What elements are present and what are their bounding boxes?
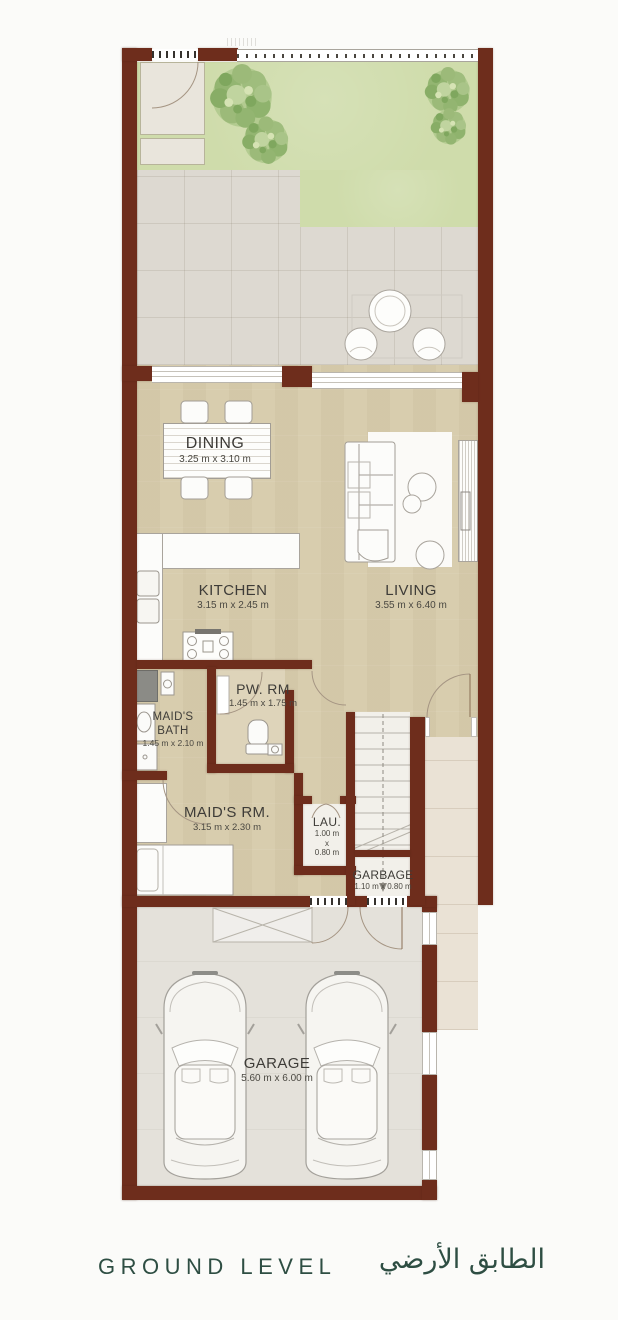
- room-label-garage: GARAGE 5.60 m x 6.00 m: [241, 1055, 313, 1084]
- room-dims: 1.45 m x 1.75 m: [229, 698, 297, 709]
- wall-laundry: [294, 796, 312, 804]
- room-label-maids-bath: MAID'S BATH 1.45 m x 2.10 m: [143, 711, 204, 748]
- door-leaf: [217, 676, 229, 714]
- garage-wall: [422, 945, 437, 1032]
- room-label-dining: DINING 3.25 m x 3.10 m: [179, 435, 251, 466]
- garage-gate-hatch: [310, 896, 347, 907]
- room-dims: 5.60 m x 6.00 m: [241, 1073, 313, 1085]
- room-label-living: LIVING 3.55 m x 6.40 m: [375, 582, 447, 611]
- stairs: [353, 714, 415, 892]
- toilet-icon: [246, 720, 270, 754]
- room-name: MAID'S RM.: [184, 804, 270, 822]
- outdoor-seating-set: [345, 290, 462, 360]
- room-name: PW. RM: [229, 681, 297, 698]
- room-name: GARAGE: [241, 1055, 313, 1073]
- garage-canopy: [213, 908, 312, 942]
- tree-icon: [425, 67, 470, 113]
- sink-icon: [137, 571, 159, 623]
- garage-window: [422, 912, 437, 945]
- room-name: KITCHEN: [197, 582, 269, 600]
- room-dims: 3.25 m x 3.10 m: [179, 454, 251, 466]
- garage-wall: [422, 1180, 437, 1200]
- wall-pier: [282, 366, 312, 387]
- garage-gate-hatch: [367, 896, 407, 907]
- tree-icon: [431, 108, 466, 145]
- room-dims: x: [313, 839, 341, 848]
- wall-right: [478, 48, 493, 905]
- level-title-arabic: الطابق الأرضي: [350, 1244, 545, 1275]
- door-jamb: [471, 717, 477, 737]
- entry-gate-hatch: [152, 49, 198, 60]
- wall-top: [198, 48, 238, 61]
- washbasin-icon: [268, 744, 282, 755]
- wall-divider: [207, 667, 216, 773]
- room-dims: 1.10 m x 0.80 m: [353, 882, 414, 891]
- garage-window: [422, 1150, 437, 1180]
- wall-maids: [122, 896, 310, 907]
- wall-bottom: [122, 1186, 437, 1200]
- wall-garbage: [355, 850, 410, 857]
- tv-icon: [461, 492, 470, 530]
- wall-pier: [462, 372, 478, 402]
- garage-wall: [422, 1075, 437, 1150]
- room-dims: 0.80 m: [313, 848, 341, 857]
- room-label-maids-room: MAID'S RM. 3.15 m x 2.30 m: [184, 804, 270, 833]
- bed-icon: [133, 845, 233, 895]
- wall-bath: [122, 771, 167, 780]
- door-jamb: [425, 717, 430, 737]
- room-name: MAID'S: [143, 711, 204, 725]
- room-name: BATH: [143, 725, 204, 739]
- sliding-door: [152, 366, 282, 383]
- wall-powder: [207, 764, 294, 773]
- room-label-powder: PW. RM 1.45 m x 1.75 m: [229, 681, 297, 709]
- level-title-english: GROUND LEVEL: [98, 1254, 336, 1280]
- wall-laundry: [294, 773, 303, 875]
- wall-kitchen: [137, 660, 312, 669]
- wall-left: [122, 48, 137, 1200]
- wall-top: [122, 48, 152, 61]
- room-label-kitchen: KITCHEN 3.15 m x 2.45 m: [197, 582, 269, 611]
- room-name: GARBAGE: [353, 868, 414, 882]
- room-label-garbage: GARBAGE 1.10 m x 0.80 m: [353, 868, 414, 892]
- room-name: LIVING: [375, 582, 447, 600]
- wall-house-front: [122, 366, 152, 381]
- cooktop-icon: [183, 629, 233, 661]
- room-dims: 3.55 m x 6.40 m: [375, 600, 447, 612]
- room-dims: 3.15 m x 2.30 m: [184, 822, 270, 833]
- garage-side-door: [422, 1032, 437, 1075]
- room-name: DINING: [179, 435, 251, 454]
- room-dims: 1.45 m x 2.10 m: [143, 738, 204, 748]
- floor-plan-canvas: DINING 3.25 m x 3.10 m KITCHEN 3.15 m x …: [0, 0, 618, 1320]
- sofa-icon: [345, 442, 395, 562]
- room-name: LAU.: [313, 815, 341, 829]
- sliding-door: [312, 372, 462, 389]
- garden-fence: [237, 49, 478, 62]
- room-label-laundry: LAU. 1.00 m x 0.80 m: [313, 815, 341, 857]
- car-icon: [156, 971, 254, 1179]
- room-dims: 1.00 m: [313, 829, 341, 838]
- room-dims: 3.15 m x 2.45 m: [197, 600, 269, 612]
